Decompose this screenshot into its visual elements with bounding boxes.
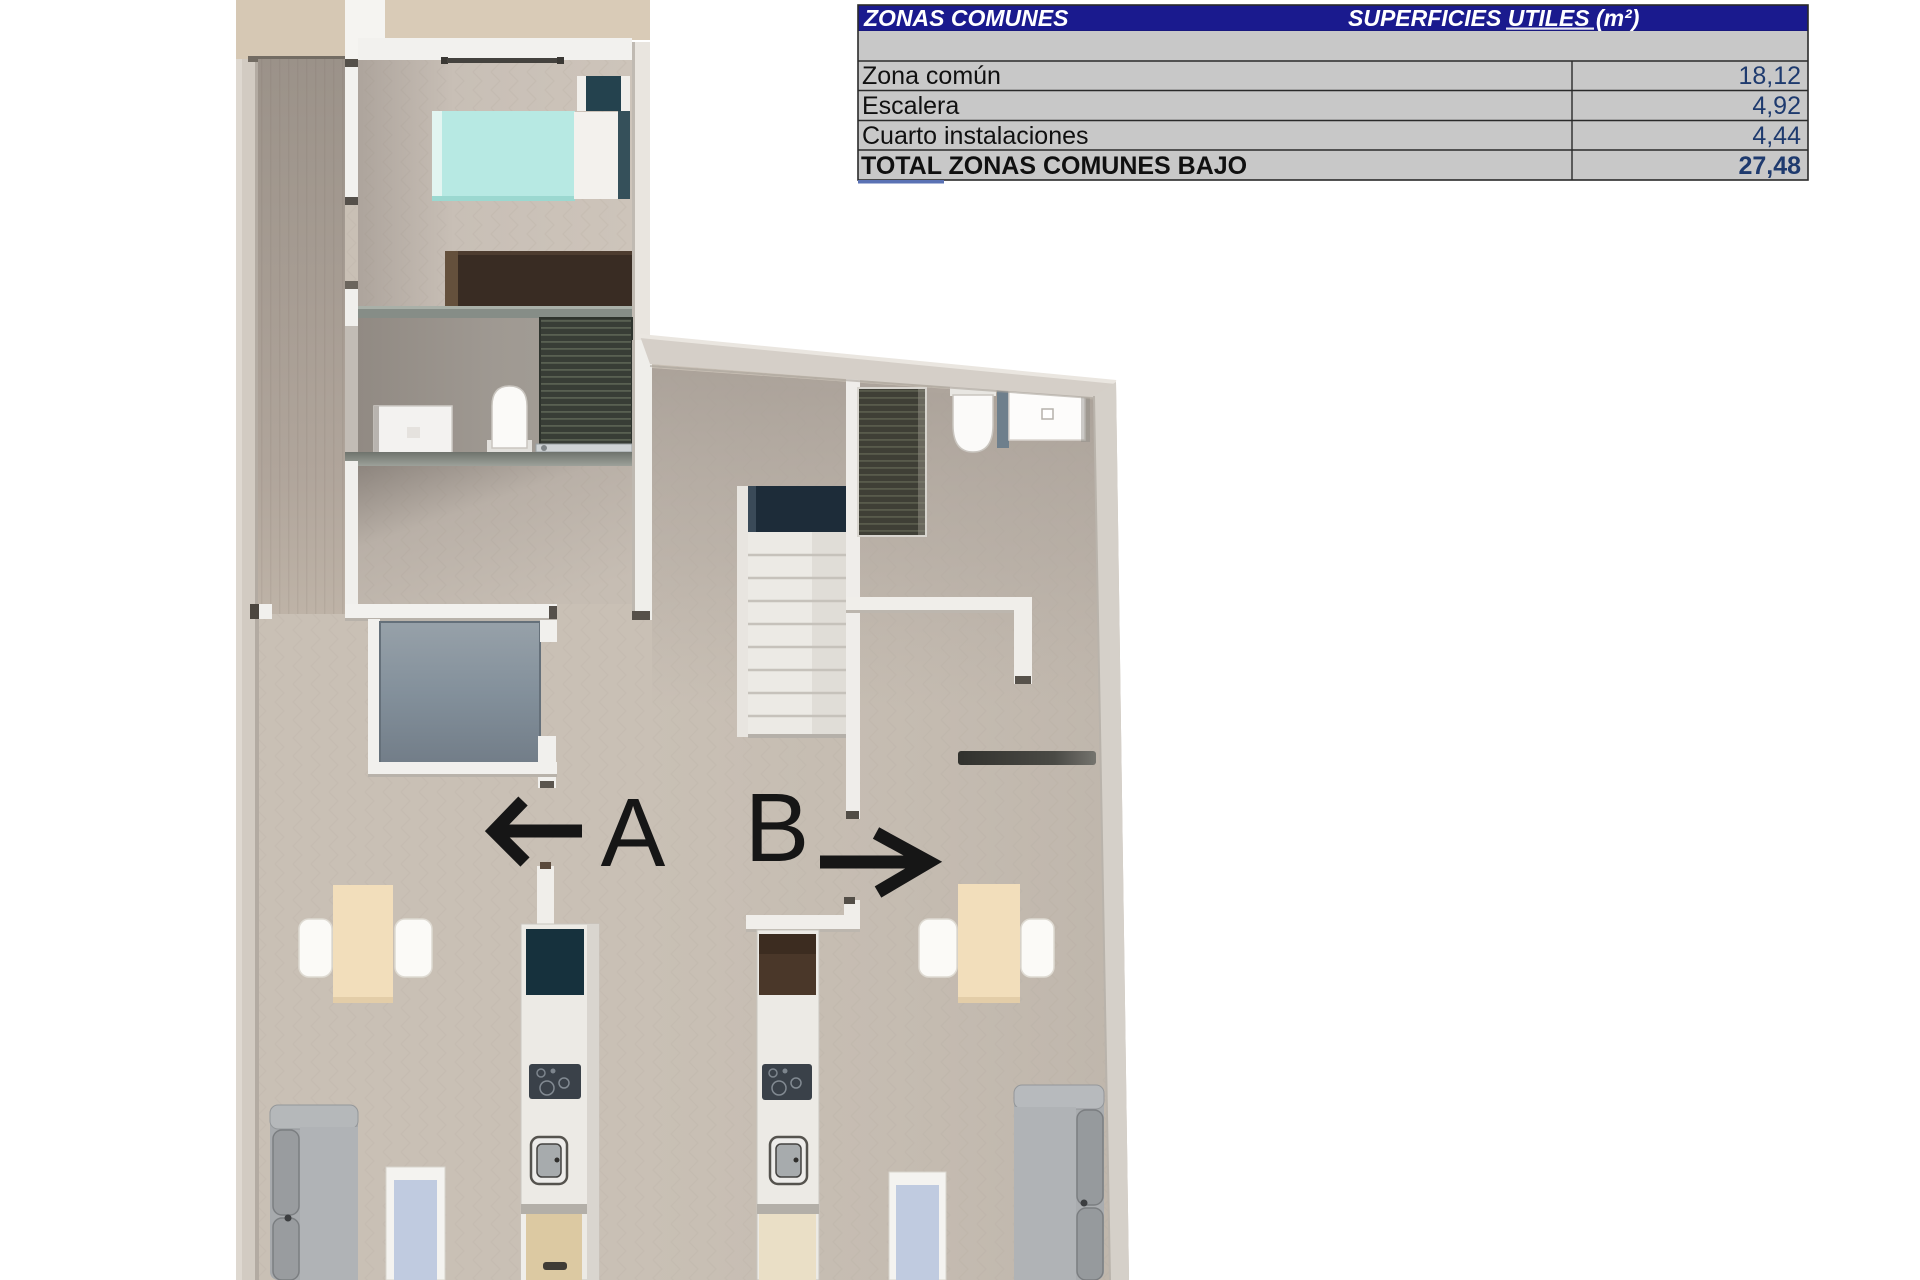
svg-text:4,92: 4,92 <box>1752 92 1801 120</box>
svg-text:TOTAL ZONAS COMUNES BAJO: TOTAL ZONAS COMUNES BAJO <box>861 152 1247 180</box>
svg-text:4,44: 4,44 <box>1752 122 1801 150</box>
svg-text:Cuarto instalaciones: Cuarto instalaciones <box>862 122 1089 150</box>
svg-text:SUPERFICIES UTILES (m²): SUPERFICIES UTILES (m²) <box>1348 5 1639 31</box>
svg-text:27,48: 27,48 <box>1738 152 1801 180</box>
svg-text:Zona común: Zona común <box>862 62 1001 90</box>
svg-text:18,12: 18,12 <box>1738 62 1801 90</box>
svg-text:A: A <box>601 778 666 887</box>
svg-text:B: B <box>745 773 810 882</box>
svg-text:Escalera: Escalera <box>862 92 959 120</box>
svg-text:ZONAS COMUNES: ZONAS COMUNES <box>863 5 1069 31</box>
